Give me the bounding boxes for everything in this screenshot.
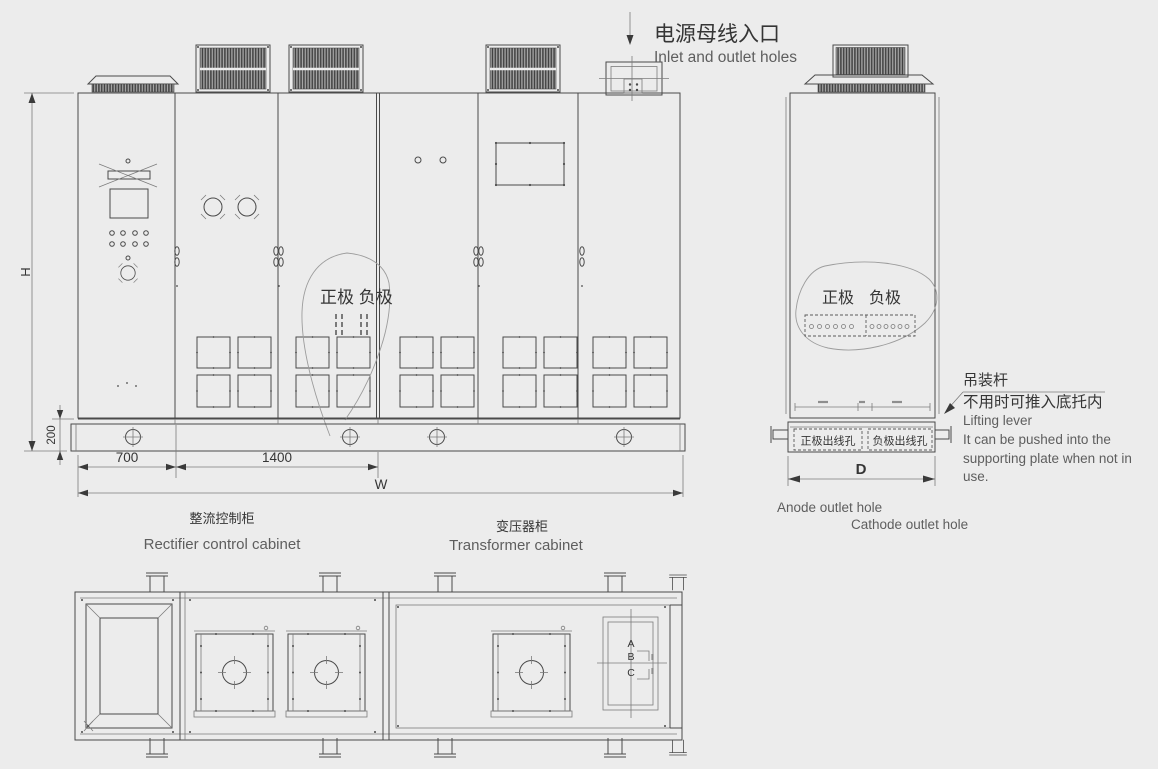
plan-panel [194,626,275,717]
plan-lifting-rods [146,573,687,757]
anchor-bolt [614,427,634,447]
roof-vent-box [196,45,270,92]
lever-en-line3: supporting plate when not in [963,451,1132,466]
side-mini-dimension [795,402,930,411]
lever-en-line2: It can be pushed into the [963,432,1111,447]
dimension-d: D [788,456,935,486]
inlet-label-en: Inlet and outlet holes [654,49,797,66]
lifting-lever-callout: 吊装杆 不用时可推入底托内 Lifting lever It can be pu… [944,372,1132,484]
side-roof-vents [805,45,933,92]
side-cathode-label: 负极 [869,289,901,307]
dim-d-label: D [856,461,867,478]
polarity-balloon-side: 正极 负极 [796,262,937,350]
transformer-caption-en: Transformer cabinet [449,537,583,554]
dim-700-label: 700 [116,450,139,465]
cathode-hole-label-en: Cathode outlet hole [851,517,968,532]
plan-panel [491,626,572,717]
plan-mark-c: C [627,667,635,679]
front-roof-vents [88,45,560,92]
display-window [110,189,148,218]
leader-arrow [944,403,955,414]
lifting-lever-rod-right [935,430,949,439]
dim-1400-label: 1400 [262,450,292,465]
inlet-arrow [627,35,634,45]
louver-grids [196,336,668,408]
lever-en-line1: Lifting lever [963,413,1033,428]
plan-panel [286,626,367,717]
plan-rectifier-frame [84,604,172,731]
anode-hole-label-cn: 正极出线孔 [801,434,856,448]
front-polarity-label: 正极 负极 [320,288,393,307]
rectifier-caption-cn: 整流控制柜 [189,511,254,526]
technical-drawing-canvas: 正极 负极 H 200 [0,0,1158,769]
anchor-bolt [123,427,143,447]
dim-w-label: W [375,477,388,492]
dim-200-label: 200 [46,425,58,444]
plan-mark-a: A [627,638,634,650]
plan-view: A B C [75,573,687,757]
base-plinth-front [71,419,685,451]
cathode-hole-label-cn: 负极出线孔 [873,434,928,448]
outlet-hole-captions: Anode outlet hole Cathode outlet hole [777,500,968,532]
front-view: 正极 负极 H 200 [18,45,685,554]
transformer-caption-cn: 变压器柜 [496,519,548,534]
inlet-detail: 电源母线入口 Inlet and outlet holes [599,12,797,101]
side-anode-label: 正极 [822,289,854,307]
side-cabinet-body [786,93,939,418]
anode-hole-label-en: Anode outlet hole [777,500,882,515]
plan-abc-assembly: A B C [597,609,667,718]
drawing-svg: 正极 负极 H 200 [0,0,1158,769]
rectifier-caption-en: Rectifier control cabinet [144,536,302,553]
roof-vent-box [486,45,560,92]
roof-vent-box [289,45,363,92]
fan-cutout [118,263,137,282]
lifting-lever-rod-left [773,430,788,439]
lever-note-cn: 不用时可推入底托内 [963,393,1103,411]
inlet-label-cn: 电源母线入口 [654,23,780,46]
door-fan-cutouts [201,157,446,219]
anchor-bolt [427,427,447,447]
transformer-access-plate [495,142,565,186]
plan-corner-marks [81,599,666,733]
cabinet-captions: 整流控制柜 Rectifier control cabinet 变压器柜 Tra… [144,511,584,554]
front-cabinet-body [78,93,680,418]
side-base: 正极出线孔 负极出线孔 [771,422,951,452]
anchor-bolt [340,427,360,447]
control-panel [99,159,157,387]
dim-h-label: H [18,267,33,276]
side-view: 正极 负极 正极出线孔 负极出线孔 [771,45,1132,532]
lever-en-line4: use. [963,469,989,484]
plan-mark-b: B [627,651,634,663]
lever-label-cn: 吊装杆 [963,372,1008,389]
